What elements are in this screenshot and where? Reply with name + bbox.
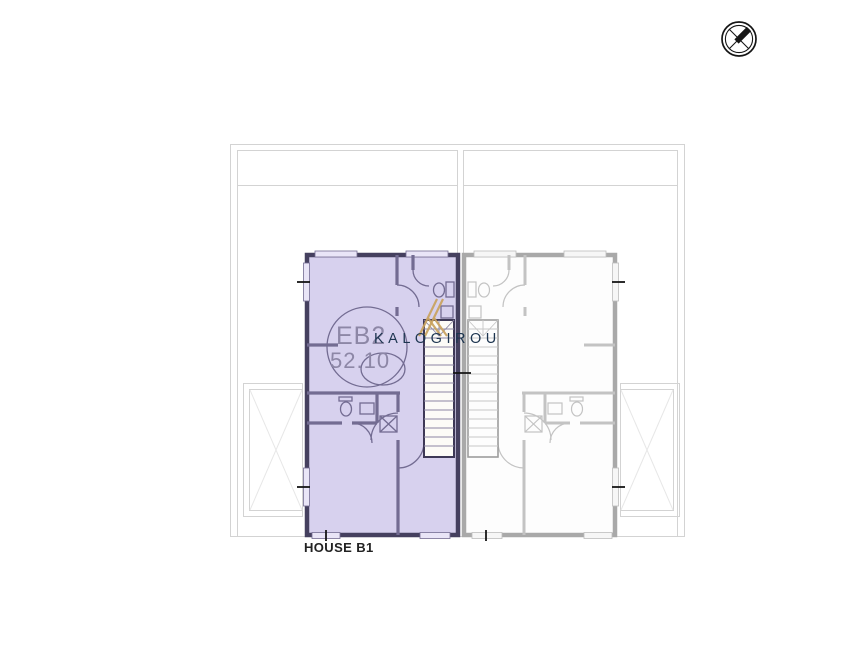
house-b1-unit[interactable] (304, 251, 459, 539)
left-terrace-void (244, 384, 303, 517)
north-compass-icon (722, 22, 756, 56)
unit-area-label: 52.10 (330, 348, 390, 374)
house-b2-unit[interactable] (464, 251, 619, 539)
right-terrace-void (621, 384, 680, 517)
floorplan-viewer: EB2 52.10 KALOGIROU HOUSE B1 (0, 0, 867, 653)
watermark-text: KALOGIROU (374, 331, 501, 347)
house-name-label: HOUSE B1 (304, 540, 374, 555)
floorplan-drawing (0, 0, 867, 653)
